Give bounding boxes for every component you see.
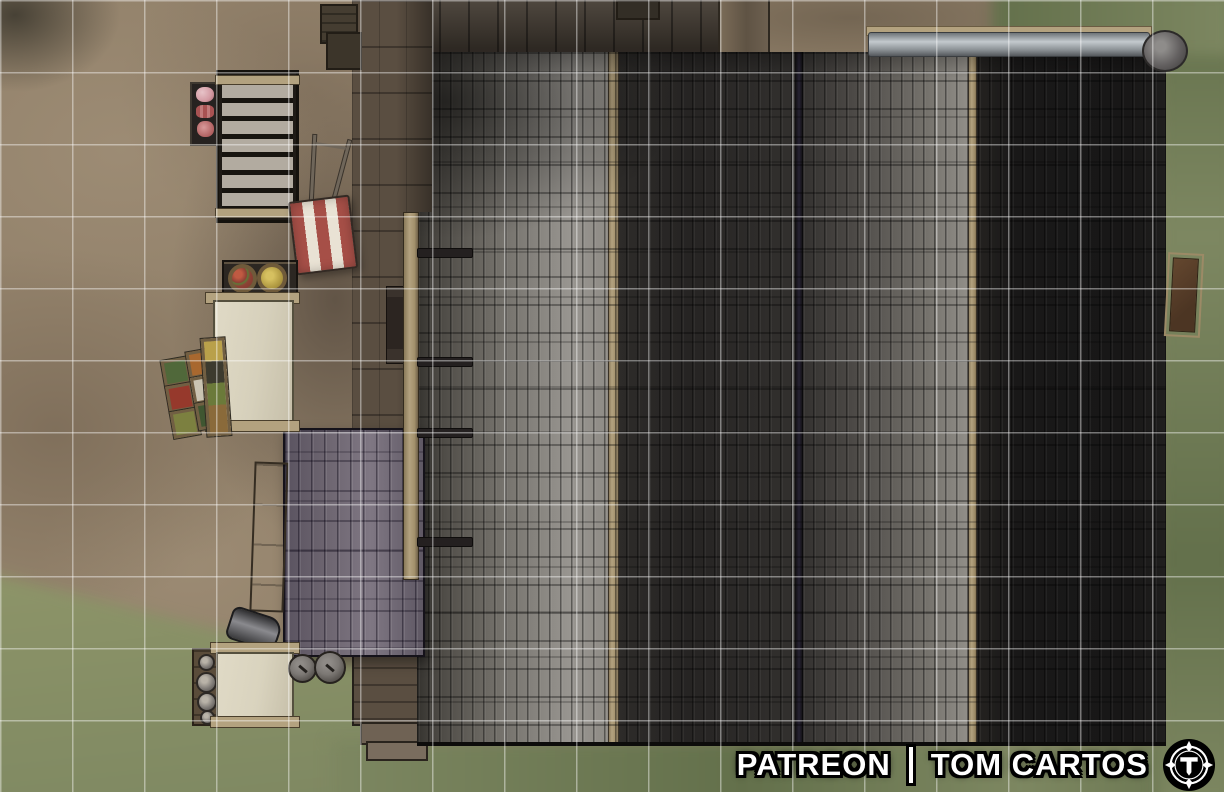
pan-handle: [325, 663, 335, 672]
gutter-pipe: [868, 32, 1150, 57]
cheese-wheel: [197, 692, 217, 712]
roof-section-dark: [619, 52, 795, 742]
rafter: [417, 248, 473, 258]
patreon-label: PATREON: [737, 747, 891, 783]
boardwalk-bottom: [352, 648, 421, 726]
sausages: [196, 105, 214, 118]
cooking-pan: [288, 654, 317, 683]
tom-cartos-compass-logo: [1162, 738, 1216, 792]
rafter: [417, 537, 473, 547]
main-roof: [417, 52, 1166, 746]
table-crossbar: [215, 208, 300, 218]
rafter: [417, 357, 473, 367]
cheese-wheel: [198, 654, 215, 671]
stall-frame-bar: [210, 716, 300, 728]
meat-cut: [196, 87, 214, 102]
tanning-rack: [1164, 252, 1204, 338]
striped-stall-awning: [288, 194, 359, 275]
table-crossbar: [215, 75, 300, 85]
butcher-table: [216, 70, 299, 223]
author-label: TOM CARTOS: [931, 747, 1148, 783]
roof-seam: [795, 52, 803, 742]
leaning-planks: [718, 0, 770, 54]
storage-crate: [616, 0, 660, 20]
table-slats: [222, 85, 293, 208]
dairy-stall-canvas: [216, 652, 294, 722]
watermark: PATREON TOM CARTOS: [0, 738, 1216, 792]
ham: [197, 121, 214, 137]
ladder-rung: [316, 142, 346, 150]
rafter: [417, 428, 473, 438]
pan-handle: [298, 664, 308, 673]
cooking-pan: [314, 651, 346, 684]
separator-bar: [909, 747, 913, 783]
roof-ridge-beam: [968, 52, 977, 742]
bench-plank: [249, 461, 288, 612]
grain-basket: [257, 263, 287, 293]
grass-right-strip: [1158, 0, 1224, 792]
roof-section-gradient: [803, 52, 968, 742]
roof-ridge-beam: [608, 52, 619, 742]
apple-basket: [228, 264, 257, 293]
storage-crate: [326, 32, 362, 70]
roof-section-black: [977, 52, 1166, 742]
eave-beam: [403, 212, 419, 580]
stretched-hide: [1169, 257, 1199, 332]
battle-map: PATREON TOM CARTOS: [0, 0, 1224, 792]
cheese-wheel: [196, 672, 217, 693]
gutter-end-cap: [1142, 30, 1188, 72]
roof-section-light: [417, 52, 608, 742]
